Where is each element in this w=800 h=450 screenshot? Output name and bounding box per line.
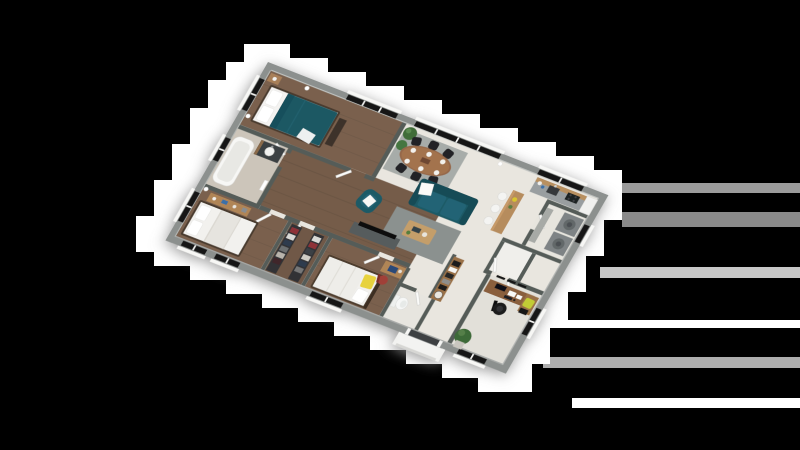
floorplan-3d-render bbox=[0, 0, 800, 450]
floorplan-scene bbox=[0, 0, 800, 450]
artifact-band-3 bbox=[600, 267, 800, 278]
artifact-band-6 bbox=[572, 398, 800, 408]
artifact-band-5 bbox=[543, 357, 800, 368]
artifact-band-2 bbox=[622, 212, 800, 227]
artifact-band-1 bbox=[612, 183, 800, 193]
